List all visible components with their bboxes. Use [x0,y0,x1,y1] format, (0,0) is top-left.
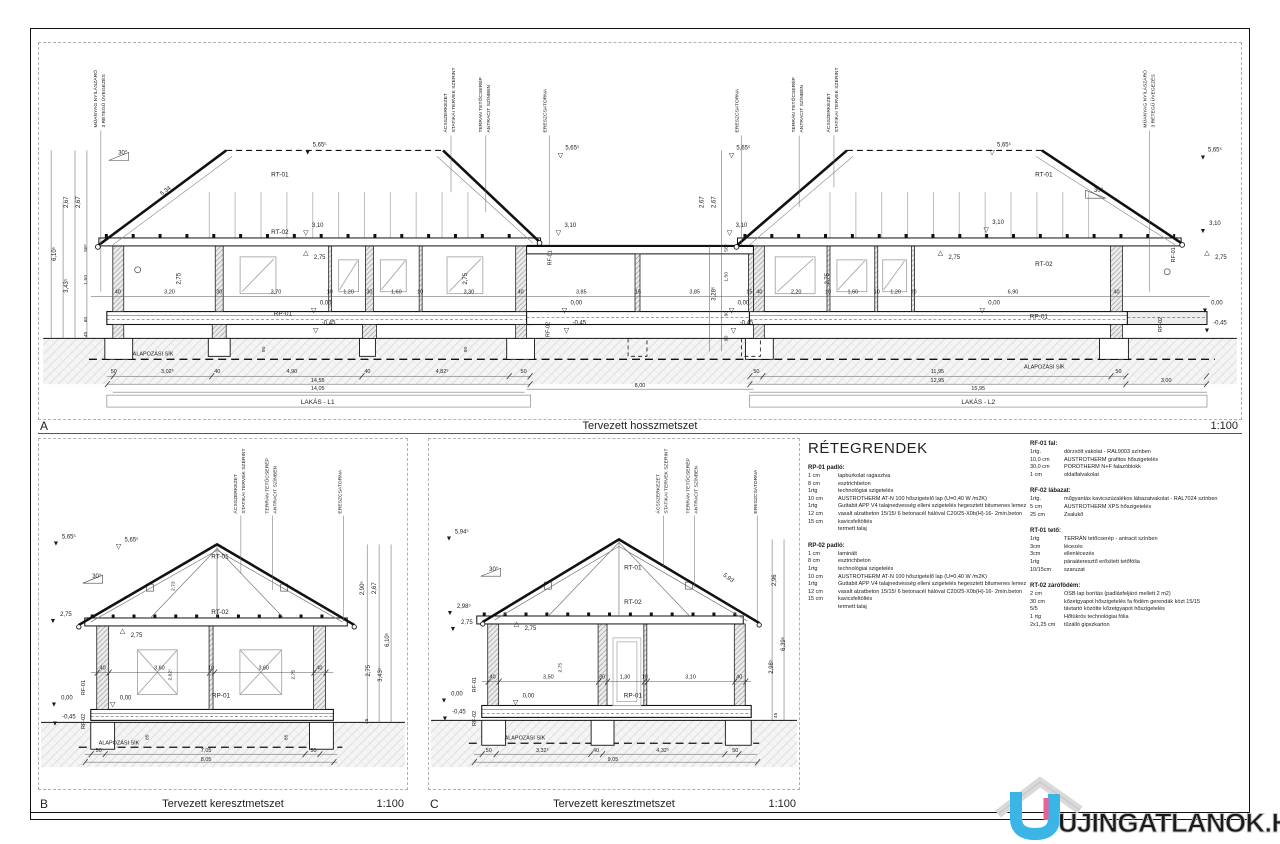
drawing-label: ERESZCSATORNA [753,469,759,513]
drawing-label: ALAPOZÁSI SÍK [1024,363,1065,370]
drawing-label: 3,32⁵ [536,747,549,754]
drawing-label: RF-01 [547,250,553,265]
section-a-panel: MŰANYAG NYÍLÁSZÁRÓ3 RÉTEGŰ ÜVEGEZÉSÁCSSZ… [38,42,1242,420]
legend-description: technológiai szigetelés [838,566,893,574]
legend-row: 1rtgGuttabit APP V4 talajnedvesség ellen… [808,581,1026,589]
drawing-label: -0,45 [740,321,754,327]
drawing-label: 85 [144,734,150,740]
legend-measure: 1rtg [1030,536,1064,544]
legend-measure: 5 cm [1030,504,1064,512]
drawing-label: 30 [366,290,372,296]
drawing-label: RF-02 [1158,317,1164,332]
drawing-label: 5,94⁵ [455,528,470,535]
drawing-label: ▽ [311,308,317,315]
drawing-label: 4,90 [287,369,298,375]
legend-row: 1 rtgHőtükrös technológiai fólia [1030,614,1250,622]
drawing-label: ▼ [445,535,452,542]
legend-description: termett talaj [838,604,867,612]
truss-c [495,539,748,621]
legend-row: 2x1,25 cmtűzálló gipszkarton [1030,622,1250,630]
legend-measure: 30 cm [1030,599,1064,607]
legend-measure: 2 cm [1030,591,1064,599]
drawing-label: RT-02 [211,609,229,616]
drawing-label: 50 [111,369,117,375]
drawing-label: ▽ [989,149,995,156]
section-c-titlebar: C Tervezett keresztmetszet 1:100 [428,797,800,812]
legend-row: 8 cmesztrichbeton [808,481,1026,489]
legend-row: 15 cmkavicsfeltöltés [808,596,1026,604]
section-b-panel: ÁCSSZERKEZETSTATIKAI TERVEK SZERINTTERRÁ… [38,438,408,790]
drawing-label: RF-02 [472,711,478,726]
legend-description: ellenlécezés [1064,551,1094,559]
legend-measure: 1rtg [808,488,838,496]
drawing-label: 0,00 [738,301,750,307]
drawing-label: 50 [96,748,102,754]
legend-group: RF-02 lábazat:1rtg.műgyantás kavicszúzal… [1030,488,1250,519]
drawing-label: 2,67 [712,196,718,208]
legend-measure: 1 rtg [1030,614,1064,622]
legend-row: 1rtg.dörzsölt vakolat - RAL9003 színben [1030,449,1250,457]
drawing-label: 2,75 [314,255,326,261]
drawing-label: ▼ [51,701,58,708]
drawing-label: △ [938,250,944,257]
section-b-titlebar: B Tervezett keresztmetszet 1:100 [38,797,408,812]
legend-measure: 1 cm [808,551,838,559]
drawing-label: ▽ [556,230,562,237]
drawing-label: ANTRACIT SZÍNBEN [485,84,492,132]
legend-row: termett talaj [808,526,1026,534]
legend-measure: 10 cm [808,496,838,504]
legend-description: AUSTROTHERM AT-N 100 hőszigetelő lap (U=… [838,574,987,582]
legend-row: 10 cmAUSTROTHERM AT-N 100 hőszigetelő la… [808,574,1026,582]
drawing-label: RF-01 [472,677,478,692]
drawing-label: 2,67 [76,196,82,208]
drawing-label: 10 [825,290,831,296]
legend-measure: 1rtg [1030,559,1064,567]
legend-group: RT-02 zárófödém:2 cmOSB lap borítás (pad… [1030,583,1250,629]
drawing-label: 2,73 [170,581,176,591]
drawing-label: 1,50 [83,275,89,285]
drawing-label: △ [120,628,126,635]
legend-measure: 12 cm [808,589,838,597]
legend-description: távtartó közötte kőzetgyapot hőszigetelé… [1064,606,1165,614]
drawing-label: STATIKAI TERVEK SZERINT [451,67,457,132]
drawing-label: 10 [910,290,916,296]
drawing-label: ▼ [1200,228,1207,235]
drawing-label: -0,45 [573,321,587,327]
drawing-label: 10 [874,290,880,296]
drawing-sheet: MŰANYAG NYÍLÁSZÁRÓ3 RÉTEGŰ ÜVEGEZÉSÁCSSZ… [0,0,1280,844]
legend-group-title: RT-02 zárófödém: [1030,583,1250,589]
drawing-label: STATIKAI TERVEK SZERINT [834,67,840,132]
drawing-label: 2,75 [825,272,831,284]
drawing-label: 30° [92,574,102,580]
legend-measure: 2x1,25 cm [1030,622,1064,630]
drawing-label: ERESZCSATORNA [542,88,548,132]
legend-group-title: RP-02 padló: [808,543,1026,549]
drawing-label: △ [303,250,309,257]
legend-row: 1 cmlapburkolat ragasztva [808,473,1026,481]
drawing-label: RF-01 [81,680,87,695]
drawing-label: 3,00 [1161,378,1172,384]
drawing-label: 5,65⁵ [124,536,139,543]
legend-group: RP-02 padló:1 cmlaminált8 cmesztrichbeto… [808,543,1026,612]
drawing-label: 3,20 [164,290,175,296]
legend-description: dörzsölt vakolat - RAL9003 színben [1064,449,1151,457]
drawing-label: ÁCSSZERKEZET [232,474,239,513]
drawing-label: 0,00 [451,692,463,698]
drawing-label: 3,10 [992,220,1004,226]
drawing-label: 2,67 [372,582,378,594]
legend-measure: 1rtg [808,581,838,589]
ujingatlanok-logo: UJINGATLANOK.HU [978,770,1268,844]
drawing-label: 6,39⁵ [780,636,787,651]
legend-row: 12 cmvasalt alzatbeton 15/15/ 6 betonacé… [808,511,1026,519]
legend-measure: 10,0 cm [1030,457,1064,465]
drawing-label: 15 [635,290,641,296]
drawing-label: -0,45 [1213,321,1227,327]
section-a-titlebar: A Tervezett hosszmetszet 1:100 [38,419,1242,434]
drawing-label: RT-01 [211,553,229,560]
legend-row: 10,0 cmAUSTROTHERM grafitos hőszigetelés [1030,457,1250,465]
drawing-label: TERRÁN TETŐCSERÉP [685,457,692,513]
drawing-label: 40 [316,666,322,672]
drawing-label: 2,20 [791,290,802,296]
drawing-label: -0,45 [452,709,466,715]
drawing-label: ▽ [116,543,122,550]
legend-measure: 15 cm [808,596,838,604]
drawing-label: 12,95 [931,378,945,384]
drawing-label: 90 [463,346,469,352]
legend-row: 1rtgTERRÁN tetőcserép - antracit színben [1030,536,1250,544]
drawing-label: 2,75 [463,272,469,284]
drawing-label: 40 [364,369,370,375]
drawing-label: 50 [753,369,759,375]
drawing-label: RF-02 [81,714,87,729]
drawing-label: ▼ [442,715,449,722]
legend-measure [808,604,838,612]
legend-row: termett talaj [808,604,1026,612]
drawing-label: 3,10 [736,223,748,229]
legend-measure: 1rtg. [1030,496,1064,504]
drawing-label: 3,50 [543,675,554,681]
drawing-label: 0,00 [61,696,73,702]
drawing-label: 0,00 [1211,301,1223,307]
drawing-label: ▼ [446,610,453,617]
drawing-label: LAKÁS - L2 [961,397,995,406]
legend-description: kőzetgyapot hőszigetelés fa födém gerend… [1064,599,1200,607]
legend-description: tűzálló gipszkarton [1064,622,1110,630]
legend-description: laminált [838,551,857,559]
drawing-label: △ [1204,250,1210,257]
drawing-label: ÁCSSZERKEZET [655,474,662,513]
drawing-label: 3,60 [258,666,269,672]
legend-description: lapburkolat ragasztva [838,473,890,481]
legend-row: 10/15cmszaruzat [1030,567,1250,575]
legend-measure: 10/15cm [1030,567,1064,575]
drawing-label: 0,00 [571,301,583,307]
legend-description: AUSTROTHERM AT-N 100 hőszigetelő lap (U=… [838,496,987,504]
drawing-label: ▽ [313,327,319,334]
section-title: Tervezett keresztmetszet [428,798,800,810]
drawing-label: TERRÁN TETŐCSERÉP [477,76,484,132]
drawing-label: 3,10 [685,675,696,681]
drawing-label: ▼ [449,626,456,633]
drawing-label: 90 [724,335,730,341]
drawing-label: 50 [732,748,738,754]
legend-description: kavicsfeltöltés [838,519,872,527]
legend-group-title: RP-01 padló: [808,465,1026,471]
drawing-label: 45 [83,331,89,337]
drawing-label: 50 [521,369,527,375]
legend-description: Guttabit APP V4 talajnedvesség elleni sz… [838,503,1026,511]
drawing-label: 40 [490,675,496,681]
drawing-label: TERRÁN TETŐCSERÉP [264,457,271,513]
legend-description: lécezés [1064,544,1083,552]
legend-description: páraáteresztő erősített tetőfólia [1064,559,1140,567]
drawing-label: 30° [1094,188,1104,194]
drawing-label: 2,62⁵ [167,669,173,681]
drawing-label: ▽ [729,308,735,315]
roof-c [481,539,762,627]
legend-description: Guttabit APP V4 talajnedvesség elleni sz… [838,581,1026,589]
drawing-label: 14,55 [311,378,325,384]
drawing-label: 10 [208,666,214,672]
legend-row: 1rtg.műgyantás kavicszúzalékos lábazatva… [1030,496,1250,504]
section-scale: 1:100 [1210,420,1238,432]
drawing-label: 15 [746,290,752,296]
drawing-label: 3,43⁵ [377,667,384,682]
drawing-label: ▽ [731,327,737,334]
drawing-label: 2,96 [772,574,778,586]
section-scale: 1:100 [768,798,796,810]
drawing-label: 2,75 [557,663,563,673]
legend-measure: 1rtg [808,503,838,511]
drawing-label: ▽ [983,227,989,234]
drawing-label: 40 [214,369,220,375]
drawing-label: 0,00 [120,696,132,702]
drawing-label: 2,67 [700,196,706,208]
drawing-label: 3 RÉTEGŰ ÜVEGEZÉS [100,74,107,128]
legend-measure: 3cm [1030,544,1064,552]
drawing-label: 10 [327,290,333,296]
legend-measure: 1rtg. [1030,449,1064,457]
drawing-label: 6,90 [1008,290,1019,296]
legend-description: technológiai szigetelés [838,488,893,496]
drawing-label: MŰANYAG NYÍLÁSZÁRÓ [92,70,99,128]
drawing-label: 2,75 [1215,255,1227,261]
legend-row: 12 cmvasalt alzatbeton 15/15/ 6 betonacé… [808,589,1026,597]
legend-description: szaruzat [1064,567,1085,575]
legend-row: 1 cmlaminált [808,551,1026,559]
drawing-label: 45 [773,712,779,718]
drawing-label: 40 [736,675,742,681]
legend-row: 5 cmAUSTROTHERM XPS hőszigetelés [1030,504,1250,512]
drawing-label: ▼ [304,149,311,156]
drawing-label: 2,75 [60,612,72,618]
drawing-label: 9,05 [608,757,619,763]
drawing-label: -0,45 [62,714,76,720]
legend-row: 1rtgtechnológiai szigetelés [808,566,1026,574]
leaders-c [664,516,757,620]
drawing-label: ▽ [303,230,309,237]
legend-row: 15 cmkavicsfeltöltés [808,519,1026,527]
drawing-label: 10 [642,675,648,681]
drawing-label: 3,43⁵ [63,278,70,293]
legend-left-groups: RP-01 padló:1 cmlapburkolat ragasztva8 c… [808,465,1026,612]
legend-group: RP-01 padló:1 cmlapburkolat ragasztva8 c… [808,465,1026,534]
legend-group-title: RT-01 tető: [1030,528,1250,534]
drawing-label: RT-01 [624,564,642,571]
drawing-label: 45 [364,718,370,724]
drawing-label: 14,05 [311,386,325,392]
legend-row: 3cmellenlécezés [1030,551,1250,559]
drawing-label: ERESZCSATORNA [337,469,343,513]
drawing-label: 80 [83,317,89,323]
legend-measure: 3cm [1030,551,1064,559]
drawing-label: 2,75 [291,670,297,680]
legend-measure: 10 cm [808,574,838,582]
drawing-label: 85 [284,734,290,740]
drawing-label: RT-01 [271,171,289,178]
drawing-label: 10 [417,290,423,296]
drawing-label: ALAPOZÁSI SÍK [505,734,546,741]
drawing-label: 0,00 [523,694,535,700]
legend-measure [808,526,838,534]
legend-description: OSB lap borítás (padlásfeljáró mellett 2… [1064,591,1171,599]
legend-row: 30 cmkőzetgyapot hőszigetelés fa födém g… [1030,599,1250,607]
drawing-label: 5,65⁵ [565,144,580,151]
legend-row: 10 cmAUSTROTHERM AT-N 100 hőszigetelő la… [808,496,1026,504]
legend-row: 1rtgpáraáteresztő erősített tetőfólia [1030,559,1250,567]
legend-description: esztrichbeton [838,481,871,489]
legend-description: Zsalukő [1064,512,1083,520]
legend-title: RÉTEGRENDEK [808,440,1026,457]
drawing-label: ▼ [52,720,59,727]
layer-legend: RÉTEGRENDEK RP-01 padló:1 cmlapburkolat … [808,440,1026,621]
legend-measure: 1rtg [808,566,838,574]
legend-measure: 8 cm [808,481,838,489]
legend-row: 3cmlécezés [1030,544,1250,552]
drawing-label: 2,90⁵ [359,581,366,596]
drawing-label: ▼ [50,618,57,625]
drawing-label: ALAPOZÁSI SÍK [133,350,174,357]
drawing-label: 90 [261,346,267,352]
drawing-label: MŰANYAG NYÍLÁSZÁRÓ [1141,70,1148,128]
legend-measure: 25 cm [1030,512,1064,520]
drawing-label: ▼ [1204,327,1211,334]
drawing-label: 3,10 [565,223,577,229]
legend-group-title: RF-02 lábazat: [1030,488,1250,494]
legend-description: POROTHERM N+F falazóblokk [1064,464,1141,472]
drawing-label: 5,93 [722,573,735,585]
legend-measure: 12 cm [808,511,838,519]
legend-row: 30,0 cmPOROTHERM N+F falazóblokk [1030,464,1250,472]
drawing-label: 2,75 [949,255,961,261]
drawing-label: 11,95 [931,369,944,375]
drawing-label: 6,10⁵ [384,632,391,647]
legend-row: 1 cmoldalfalvakolat [1030,472,1250,480]
drawing-label: 1,20 [890,290,901,296]
drawing-label: 30° [489,567,499,573]
drawing-label: 5,65⁵ [313,141,328,148]
drawing-label: 8,05 [201,757,212,763]
drawing-label: ANTRACIT SZÍNBEN [272,465,279,513]
drawing-label: 8,00 [635,383,646,389]
drawing-label: 58⁵ [83,244,89,252]
legend-right-groups: RF-01 fal:1rtg.dörzsölt vakolat - RAL900… [1030,441,1250,629]
drawing-label: 50 [1115,369,1121,375]
drawing-label: 3 RÉTEGŰ ÜVEGEZÉS [1149,74,1156,128]
drawing-label: 1,30 [620,675,631,681]
legend-row: 2 cmOSB lap borítás (padlásfeljáró melle… [1030,591,1250,599]
drawing-label: STATIKAI TERVEK SZERINT [664,448,670,513]
drawing-label: ALAPOZÁSI SÍK [99,739,140,746]
legend-measure: 15 cm [808,519,838,527]
drawing-label: 40 [1113,290,1119,296]
drawing-label: 3,30 [464,290,475,296]
drawing-label: ▽ [980,308,986,315]
drawing-label: RT-02 [1035,261,1053,268]
drawing-label: ▽ [513,699,519,706]
drawing-label: 7,05 [201,748,212,754]
legend-description: vasalt alzatbeton 15/15/ 6 betonacél hál… [838,511,1022,519]
drawing-label: 4,32⁵ [656,747,669,754]
drawing-label: 3,70 [271,290,282,296]
logo-text: UJINGATLANOK.HU [1058,808,1280,838]
legend-measure: 30,0 cm [1030,464,1064,472]
section-title: Tervezett keresztmetszet [38,798,408,810]
connector [527,246,754,312]
drawing-label: 40 [115,290,121,296]
drawing-label: 3,28⁵ [711,286,718,301]
drawing-label: 15,95 [971,386,985,392]
legend-row: 1rtgtechnológiai szigetelés [808,488,1026,496]
drawing-label: 40 [593,748,599,754]
legend-description: termett talaj [838,526,867,534]
drawing-label: 50 [486,748,492,754]
drawing-label: 2,75 [176,272,182,284]
drawing-label: ▽ [110,701,116,708]
drawing-label: 2,75 [366,664,372,676]
drawing-label: 1,60 [391,290,402,296]
drawing-label: 4,82⁵ [436,368,449,375]
drawing-label: 5,65⁵ [62,533,77,540]
drawing-label: STATIKAI TERVEK SZERINT [241,448,247,513]
drawing-label: 2,75 [461,620,473,626]
drawing-label: 30° [118,150,128,156]
drawing-label: ▼ [53,540,60,547]
drawing-label: RF-02 [545,322,551,337]
drawing-label: △ [514,621,520,628]
drawing-label: -0,45 [322,321,336,327]
windows [240,257,906,294]
legend-description: TERRÁN tetőcserép - antracit színben [1064,536,1158,544]
drawing-label: 30 [216,290,222,296]
legend-measure: 1 cm [1030,472,1064,480]
legend-row: 1rtgGuttabit APP V4 talajnedvesség ellen… [808,503,1026,511]
legend-description: Hőtükrös technológiai fólia [1064,614,1129,622]
drawing-label: 1,20 [343,290,354,296]
drawing-label: 2,98⁵ [768,659,775,674]
drawing-label: 3,85 [689,290,700,296]
ceilings [99,236,1181,246]
drawing-label: ERESZCSATORNA [734,88,740,132]
drawing-label: 30 [599,675,605,681]
drawing-label: 2,67 [64,196,70,208]
drawing-label: 1,60 [848,290,859,296]
drawing-label: 40 [756,290,762,296]
